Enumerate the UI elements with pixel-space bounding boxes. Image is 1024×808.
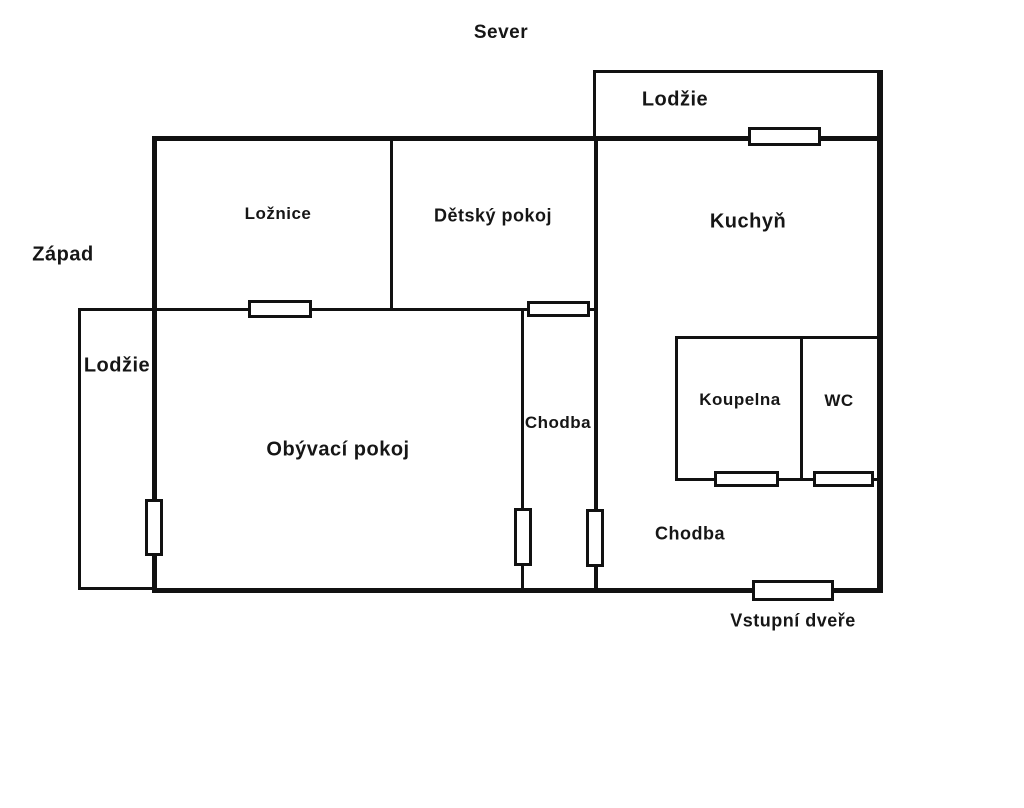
lodzie-sever-right-wall [877,70,883,136]
koupelna-top-wall [675,336,877,339]
okno-obyvaci-lodzie [145,499,163,556]
vstupni-dvere-otvor [752,580,834,601]
lodzie-zapad-left-wall [78,308,81,590]
lodzie-sever-left-wall [593,70,596,136]
floor-plan: SeverZápadLodžieLodžieLožniceDětský poko… [0,0,1024,808]
obvod-right-wall [877,136,883,593]
zapad-label: Západ [32,244,93,267]
loznice-label: Ložnice [245,204,312,224]
kuchyn-label: Kuchyň [710,211,786,234]
chodba-svisla-label: Chodba [525,413,591,433]
detsky-pokoj-label: Dětský pokoj [434,206,552,227]
loznice-detsky-del-wall [390,141,393,309]
lodzie-zapad-bottom-wall [78,587,155,590]
obyvaci-pokoj-label: Obývací pokoj [266,439,409,462]
lodzie-zapad-label: Lodžie [84,355,150,378]
lodzie-zapad-top-wall [78,308,155,311]
okno-kuchyn-lodzie [748,127,821,146]
sever-label: Sever [474,22,528,44]
koupelna-left-wall [675,336,678,481]
dvere-obyvaci-chodba [514,508,532,566]
koupelna-label: Koupelna [699,390,780,410]
dvere-chodba-kuchyn [586,509,604,567]
okno-loznice [248,300,312,318]
lodzie-sever-label: Lodžie [642,89,708,112]
dvere-koupelna [714,471,779,487]
wc-label: WC [824,391,853,411]
chodba-dolni-label: Chodba [655,524,725,545]
vstupni-dvere-label: Vstupní dveře [730,611,856,632]
dvere-wc [813,471,874,487]
koupelna-wc-del-wall [800,336,803,481]
lodzie-sever-top-wall [593,70,882,73]
okno-chodba-horni [527,301,590,317]
